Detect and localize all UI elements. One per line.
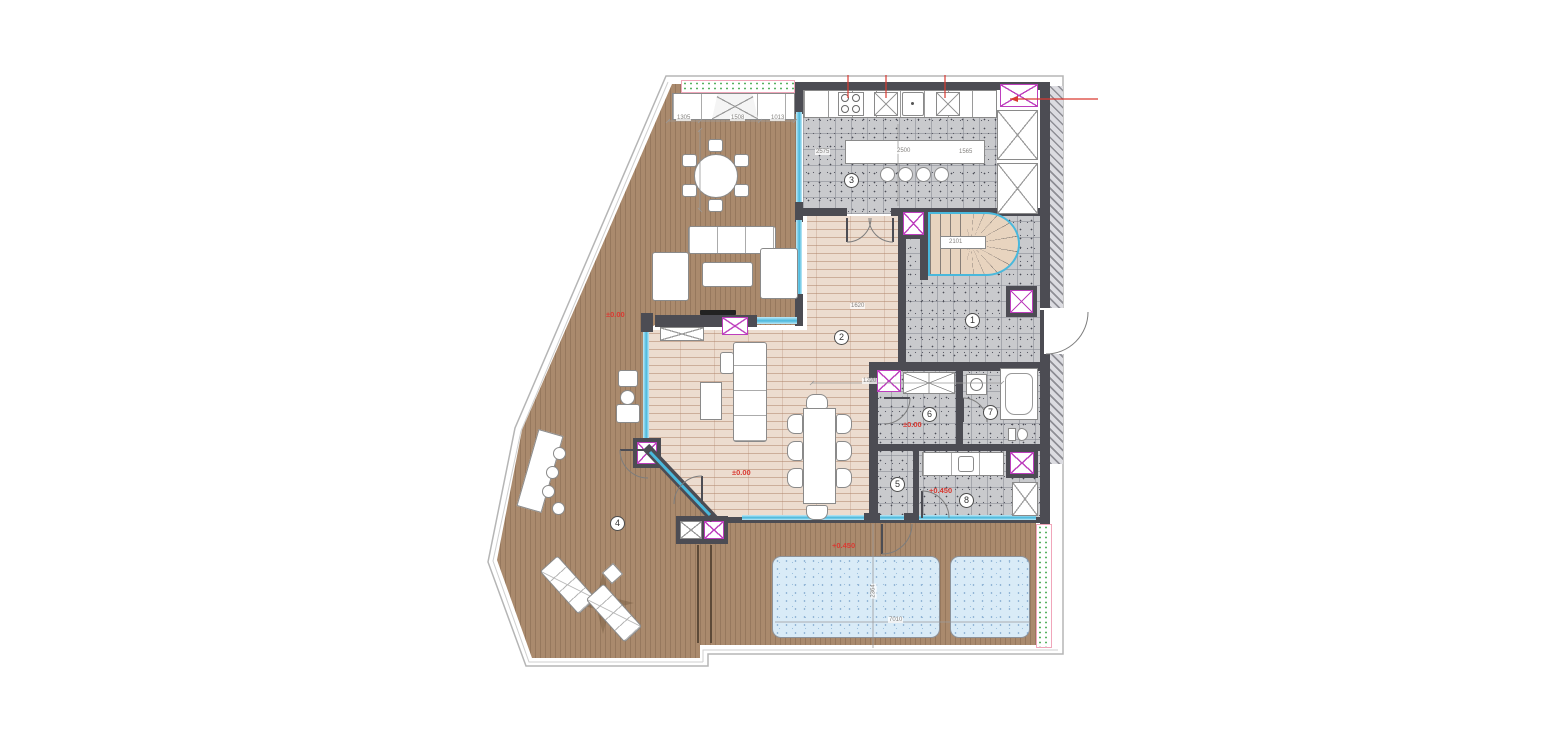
burner-icon: [852, 94, 860, 102]
dim-pool-width: 7010: [888, 617, 903, 623]
tall-cabinet: [997, 110, 1038, 160]
tv-icon: [700, 310, 736, 315]
pool-large: [772, 556, 940, 638]
outdoor-chair: [734, 154, 749, 167]
side-table: [700, 382, 722, 420]
room-marker-6: 6: [922, 407, 937, 422]
planter-pot: [618, 370, 638, 387]
bar-stool: [898, 167, 913, 182]
vanity-sink-icon: [958, 456, 974, 472]
room-marker-3: 3: [844, 173, 859, 188]
bar-stool: [916, 167, 931, 182]
toilet-icon: [1008, 428, 1016, 441]
dining-chair: [787, 441, 803, 461]
level-label-hall6: ±0.00: [903, 420, 922, 429]
level-label-room8: +0.450: [929, 486, 952, 495]
planter-top: [681, 80, 795, 93]
outdoor-dining-table: [694, 154, 738, 198]
terrace-bar-stool: [553, 447, 566, 460]
room-marker-5: 5: [890, 477, 905, 492]
terrace-window-band: [757, 317, 797, 324]
outdoor-chair: [734, 184, 749, 197]
dining-chair: [836, 414, 852, 434]
shaft-tv-wall: [722, 317, 748, 335]
washing-machine-drum: [970, 378, 983, 391]
burner-icon: [852, 105, 860, 113]
outdoor-armchair: [760, 248, 798, 299]
wall-bath-mid-v: [956, 371, 963, 447]
party-wall-hatch-lower: [1050, 354, 1063, 464]
dining-chair: [787, 414, 803, 434]
outdoor-chair: [682, 184, 697, 197]
wall-west-post-b: [795, 202, 803, 222]
dim-living-side: 1620: [850, 303, 865, 309]
level-label-terrace: ±0.00: [606, 310, 625, 319]
dim-terrace-b: 1508: [730, 115, 745, 121]
wall-west-post-a: [795, 82, 803, 114]
outdoor-chair: [708, 139, 723, 152]
room-marker-8: 8: [959, 493, 974, 508]
burner-icon: [841, 105, 849, 113]
dim-island: 2500: [896, 148, 911, 154]
shaft-hall: [1010, 290, 1033, 313]
shaft-sw: [704, 521, 724, 539]
outdoor-coffee-table: [702, 262, 753, 287]
sofa-l-shaped: [733, 342, 767, 442]
outdoor-chair: [708, 199, 723, 212]
dim-pool-depth: 2364: [871, 583, 877, 598]
shower-room8: [1012, 482, 1038, 516]
living-west-window-lower: [643, 332, 649, 442]
bar-stool: [934, 167, 949, 182]
level-label-pool-deck: +0.450: [832, 541, 855, 550]
dim-stair: 2101: [948, 239, 963, 245]
pool-small: [950, 556, 1030, 638]
sofa-chaise: [720, 352, 734, 374]
kitchen-west-window: [796, 112, 802, 204]
dim-kitchen-right: 1565: [958, 149, 973, 155]
dim-terrace-c: 1013: [770, 115, 785, 121]
terrace-bar-stool: [552, 502, 565, 515]
planter-pot-round: [620, 390, 635, 405]
base-cabinet-icon: [874, 92, 898, 116]
shower-tray: [903, 372, 955, 394]
shaft-west-living: [637, 442, 657, 464]
wall-bath-lower-v: [913, 451, 919, 520]
south-glazing: [742, 515, 1036, 520]
dining-chair: [806, 394, 828, 409]
dining-chair: [836, 468, 852, 488]
party-wall-hatch-upper: [1050, 86, 1063, 308]
dim-terrace-a: 1305: [676, 115, 691, 121]
deck-step-lines: [697, 545, 715, 643]
shaft-stair: [903, 212, 924, 235]
floor-plan-canvas: 2101: [0, 0, 1567, 738]
room-marker-2: 2: [834, 330, 849, 345]
wall-east-upper: [1040, 90, 1050, 308]
sink-drain-icon: [911, 102, 914, 105]
terrace-bar-stool: [542, 485, 555, 498]
dining-chair: [836, 441, 852, 461]
dim-living-width: 1220: [862, 378, 877, 384]
terrace-bar-stool: [546, 466, 559, 479]
dining-chair: [806, 505, 828, 520]
tv-wall-cabinet: [660, 327, 704, 341]
wall-kitchen-living-a: [803, 208, 847, 216]
dining-table: [803, 408, 836, 504]
bathtub-inner: [1005, 373, 1033, 415]
dim-kitchen-left: 2575: [815, 149, 830, 155]
shaft-bath-nw: [877, 370, 901, 392]
level-label-living: ±0.00: [732, 468, 751, 477]
room-marker-4: 4: [610, 516, 625, 531]
outdoor-chair: [682, 154, 697, 167]
kitchen-counter: [803, 90, 997, 118]
room-marker-7: 7: [983, 405, 998, 420]
sw-cabinet: [680, 521, 702, 539]
entrance-door-leaf: [1040, 310, 1044, 354]
wall-east-lower: [1040, 354, 1050, 524]
burner-icon: [841, 94, 849, 102]
dishwasher-icon: [936, 92, 960, 116]
planter-right: [1036, 524, 1052, 648]
bar-stool: [880, 167, 895, 182]
tall-cabinet: [997, 163, 1038, 214]
shaft-kitchen-ne: [1000, 84, 1038, 107]
dining-chair: [787, 468, 803, 488]
room-marker-1: 1: [965, 313, 980, 328]
shaft-bath-e: [1010, 452, 1034, 474]
planter-pot: [616, 404, 640, 423]
wall-living-west-post-a: [641, 313, 653, 332]
outdoor-armchair: [652, 252, 689, 301]
